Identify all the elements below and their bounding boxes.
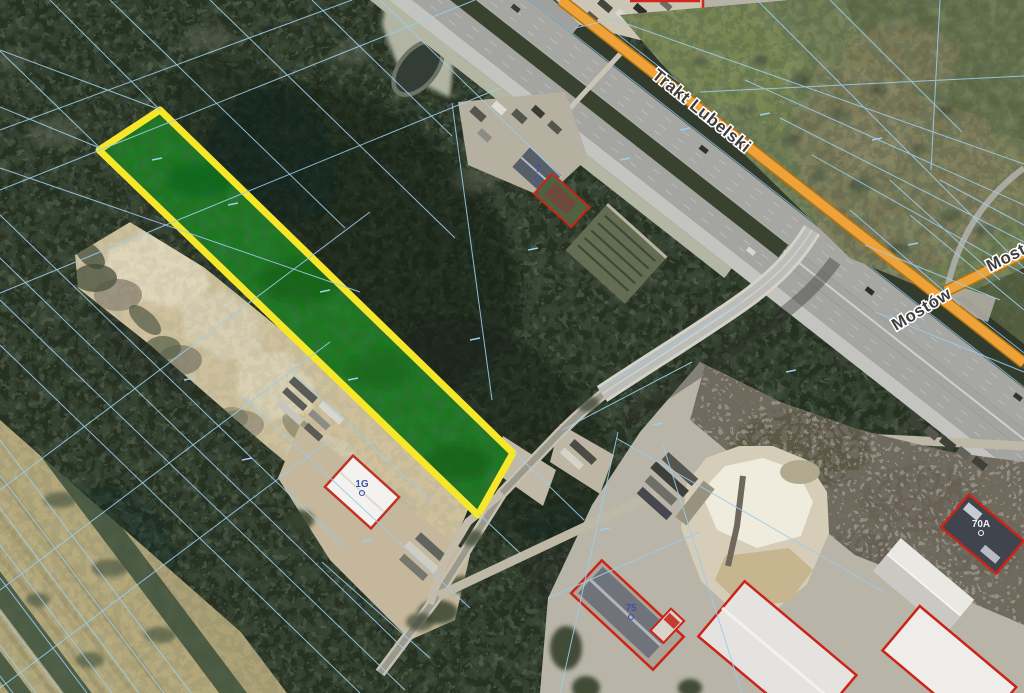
svg-text:1G: 1G — [355, 479, 369, 490]
svg-text:7: 7 — [535, 164, 541, 175]
svg-text:75: 75 — [625, 603, 637, 614]
svg-text:70A: 70A — [972, 519, 990, 530]
